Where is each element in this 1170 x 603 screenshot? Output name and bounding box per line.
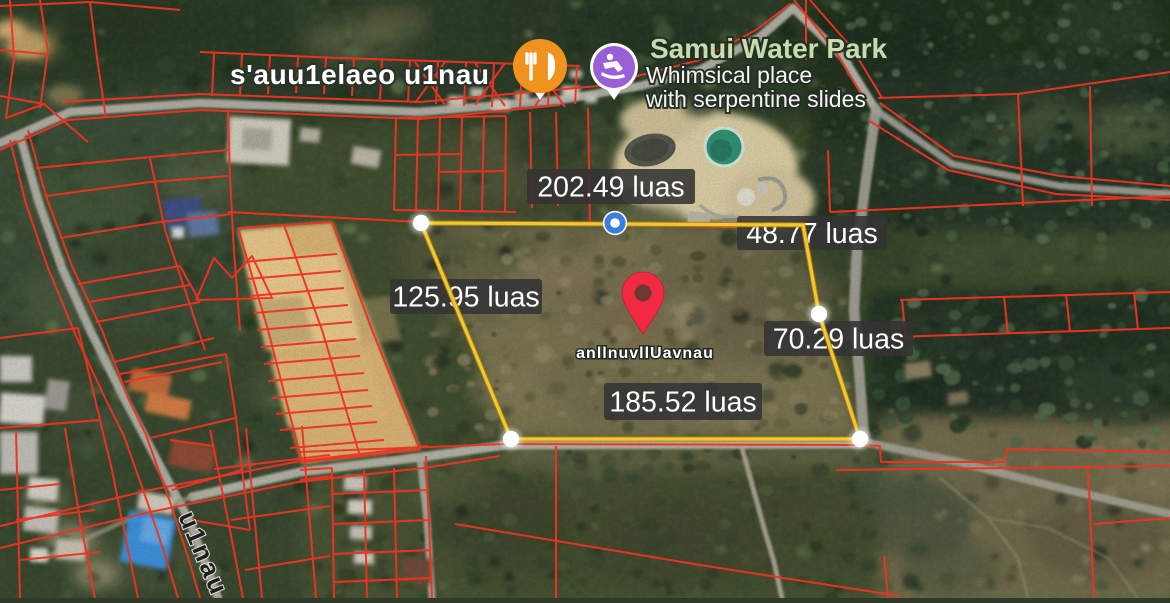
svg-text:185.52 luas: 185.52 luas [609, 387, 756, 419]
svg-text:anllnuvllUavnau: anllnuvllUavnau [576, 345, 714, 362]
svg-text:125.95 luas: 125.95 luas [392, 282, 539, 314]
svg-text:with serpentine slides: with serpentine slides [645, 86, 866, 112]
svg-text:Samui Water Park: Samui Water Park [650, 33, 887, 64]
svg-text:202.49 luas: 202.49 luas [537, 172, 684, 204]
svg-text:70.29 luas: 70.29 luas [773, 324, 905, 356]
svg-text:s'auu1elaeo u1nau: s'auu1elaeo u1nau [230, 59, 490, 90]
svg-text:Whimsical place: Whimsical place [646, 62, 812, 88]
